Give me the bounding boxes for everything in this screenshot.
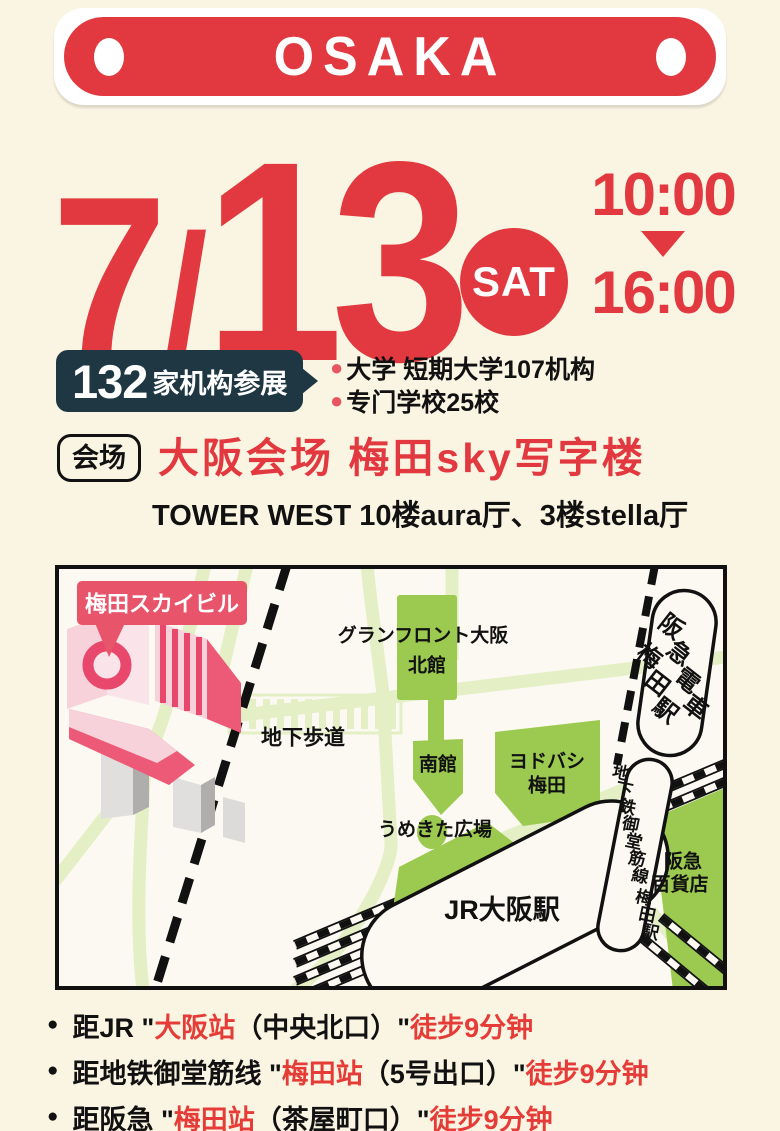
venue-map: 梅田スカイビル地下歩道グランフロント大阪北館南館ヨドバシ梅田うめきた広場JR大阪…: [55, 565, 727, 990]
map-label-minamikan: 南館: [419, 753, 457, 776]
banner-hole-left-icon: [94, 38, 124, 76]
time-start: 10:00: [591, 165, 734, 225]
map-label-yodobashi-1: ヨドバシ: [509, 751, 585, 773]
access-text-segment: 梅田站: [282, 1052, 363, 1091]
bullet-dot-icon: ●: [330, 390, 343, 412]
map-label-grand-front-osaka: グランフロント大阪: [338, 624, 509, 647]
access-text-segment: （5号出口）": [363, 1052, 526, 1091]
bullet-dot-icon: ●: [47, 1014, 58, 1036]
osaka-banner: OSAKA: [54, 8, 726, 105]
exhibitor-breakdown-item: ●专门学校25校: [330, 384, 595, 417]
access-text-segment: 距地铁御堂筋线 ": [72, 1052, 281, 1091]
exhibitor-breakdown-list: ●大学 短期大学107机构●专门学校25校: [330, 351, 595, 417]
access-item: ●距阪急 "梅田站（茶屋町口）" 徒步9分钟: [47, 1094, 649, 1131]
grand-front-north-building: [397, 595, 457, 700]
access-text-segment: 徒步9分钟: [430, 1098, 553, 1131]
map-label-hankyu-dept-2: 百貨店: [651, 873, 708, 896]
access-item: ●距JR "大阪站（中央北口）" 徒步9分钟: [47, 1002, 649, 1048]
exhibitor-count-badge: 132 家机构参展: [56, 350, 303, 412]
map-label-kitakan: 北館: [408, 654, 446, 677]
venue-label: 会场: [72, 443, 126, 473]
map-label-umekita-hiroba: うめきた広場: [378, 818, 492, 841]
access-item: ●距地铁御堂筋线 "梅田站（5号出口）" 徒步9分钟: [47, 1048, 649, 1094]
arrow-down-icon: [641, 231, 685, 257]
venue-title: 大阪会场 梅田sky写字楼: [158, 424, 646, 484]
banner-hole-right-icon: [656, 38, 686, 76]
map-label-jr-osaka-station: JR大阪駅: [444, 895, 560, 925]
access-text-segment: 梅田站: [174, 1098, 255, 1131]
exhibitor-breakdown-item: ●大学 短期大学107机构: [330, 351, 595, 384]
access-text-segment: 徒步9分钟: [410, 1006, 533, 1045]
osaka-banner-red-plate: OSAKA: [64, 17, 716, 96]
weekday-label: SAT: [472, 258, 556, 306]
access-text-segment: （中央北口）": [235, 1006, 410, 1045]
map-label-hankyu-dept-1: 阪急: [664, 850, 702, 873]
access-text-segment: （茶屋町口）": [255, 1098, 430, 1131]
map-label-umeda-sky-tag: 梅田スカイビル: [85, 592, 239, 617]
venue-label-pill: 会场: [57, 434, 141, 482]
bullet-dot-icon: ●: [47, 1106, 58, 1128]
city-title: OSAKA: [274, 25, 507, 88]
venue-map-svg: 梅田スカイビル地下歩道グランフロント大阪北館南館ヨドバシ梅田うめきた広場JR大阪…: [55, 565, 727, 990]
exhibitor-count: 132: [72, 354, 147, 409]
map-label-yodobashi-2: 梅田: [528, 774, 566, 797]
bullet-dot-icon: ●: [47, 1060, 58, 1082]
access-text-segment: 徒步9分钟: [526, 1052, 649, 1091]
time-end: 16:00: [591, 263, 734, 323]
exhibitor-count-suffix: 家机构参展: [152, 362, 287, 401]
access-directions-list: ●距JR "大阪站（中央北口）" 徒步9分钟●距地铁御堂筋线 "梅田站（5号出口…: [47, 1002, 649, 1131]
badge-arrow-icon: [302, 368, 318, 394]
access-text-segment: 大阪站: [154, 1006, 235, 1045]
access-text-segment: 距JR ": [72, 1006, 154, 1045]
bullet-dot-icon: ●: [330, 357, 343, 379]
exhibitor-breakdown-text: 大学 短期大学107机构: [346, 350, 595, 386]
grand-front-corridor: [428, 698, 444, 743]
map-label-chika-hodo: 地下歩道: [261, 726, 345, 750]
access-text-segment: 距阪急 ": [72, 1098, 173, 1131]
venue-subtitle: TOWER WEST 10楼aura厅、3楼stella厅: [152, 492, 688, 534]
flyer-osaka: OSAKA 7 / 13 SAT 10:00 16:00 132 家机构参展 ●…: [0, 0, 780, 1131]
weekday-badge: SAT: [460, 228, 568, 336]
event-times: 10:00 16:00: [578, 165, 748, 323]
exhibitor-breakdown-text: 专门学校25校: [346, 383, 499, 419]
